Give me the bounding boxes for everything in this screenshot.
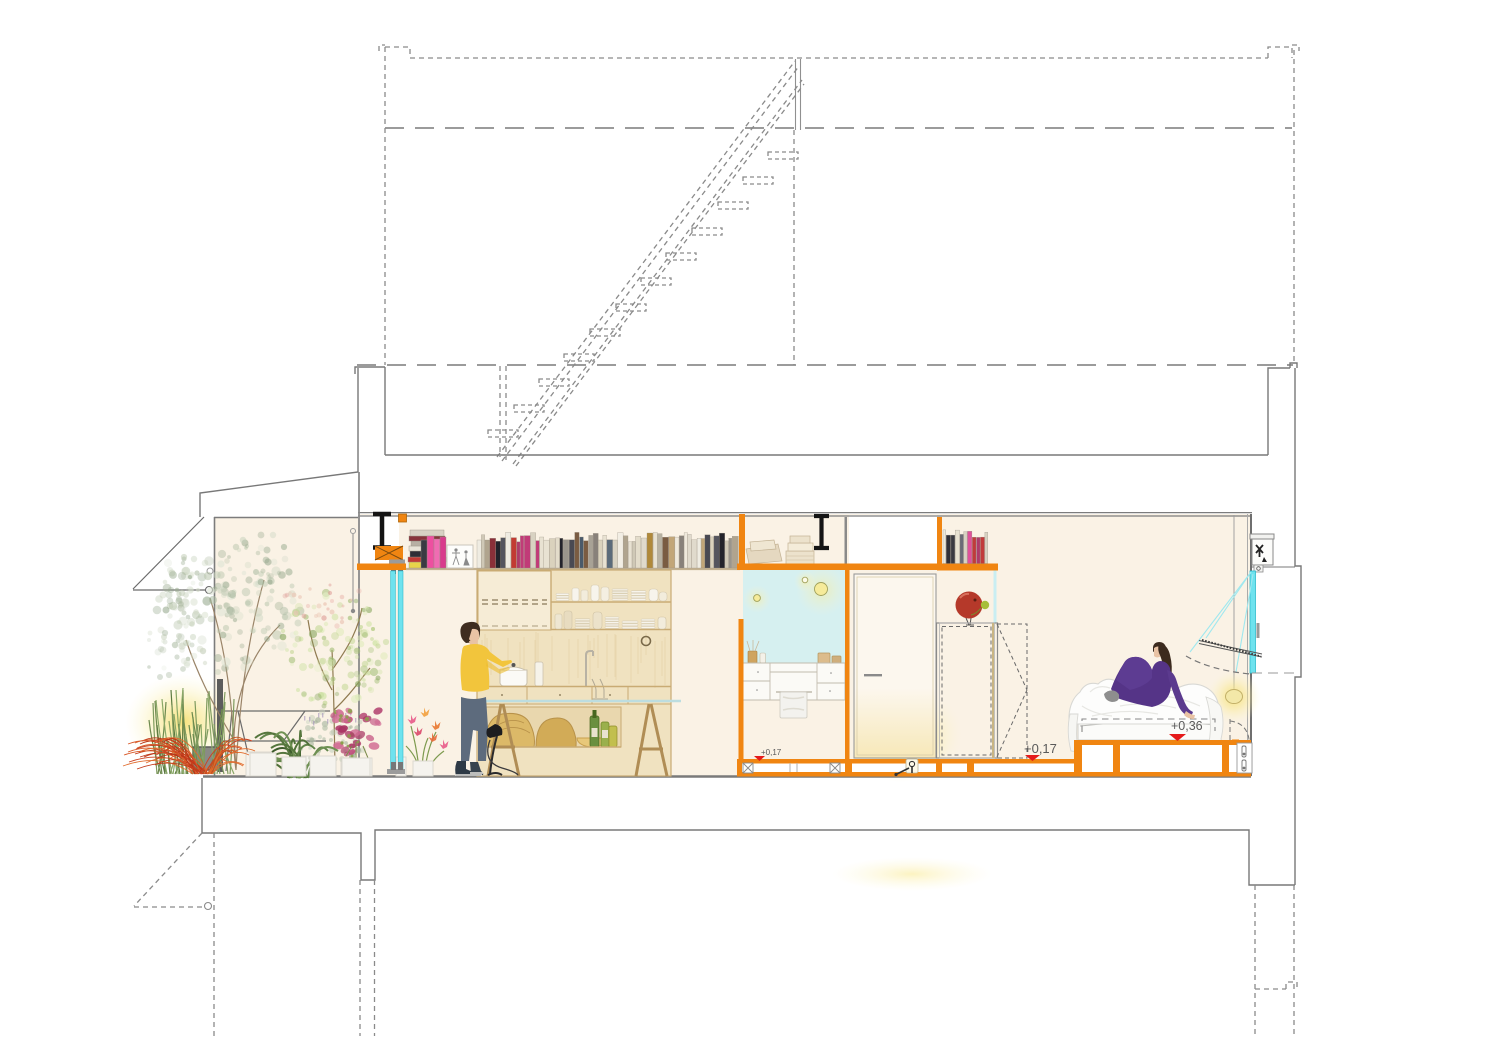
svg-text:+0,17: +0,17 [1024,741,1057,756]
svg-text:+0,17: +0,17 [761,748,782,757]
svg-text:+0,36: +0,36 [1171,719,1203,733]
